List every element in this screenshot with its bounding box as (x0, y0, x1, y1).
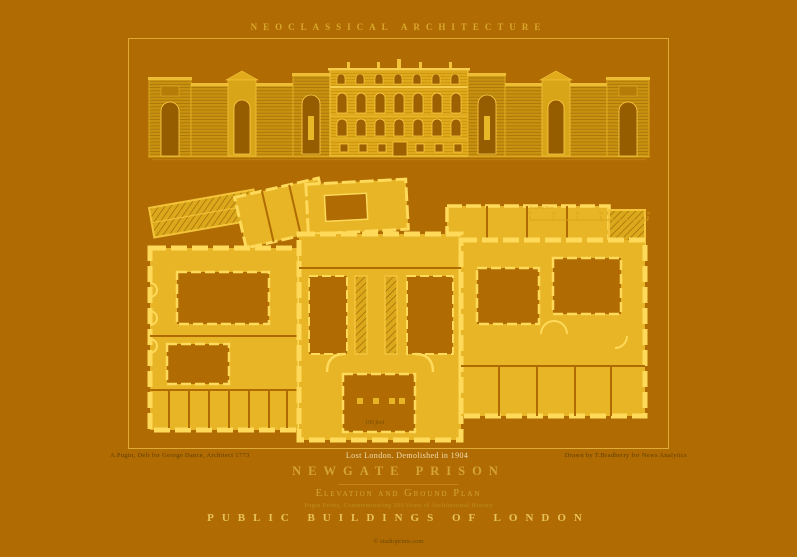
elevation-right-pavilion (606, 77, 650, 156)
scale-bar: Scale of Feet 0 20 40 60 80 100 (528, 202, 650, 228)
plate-subtitle: Elevation and Ground Plan (0, 488, 797, 499)
plan-quadrangle-east (461, 240, 645, 416)
elevation-left-wall (191, 71, 293, 156)
series-note: Pugin Prints, Commemorating 200 Years of… (0, 502, 797, 509)
elevation-left-pavilion (148, 77, 192, 156)
poster: NEOCLASSICAL ARCHITECTURE (0, 0, 797, 557)
elevation-central-block (328, 59, 470, 156)
plate-title: NEWGATE PRISON (0, 464, 797, 479)
scale-bar-caption: Scale of Feet (530, 205, 554, 210)
svg-text:60: 60 (599, 211, 604, 216)
title-divider (338, 484, 458, 485)
page-title: NEOCLASSICAL ARCHITECTURE (0, 22, 797, 32)
svg-text:20: 20 (551, 211, 556, 216)
plan-block-north-center (306, 179, 408, 234)
credit-left: A.Pugin, Delt for George Dance, Architec… (110, 452, 250, 459)
elevation-inner-pavilion-left (292, 73, 331, 156)
elevation-ground-line (148, 157, 650, 161)
elevation-inner-pavilion-right (467, 73, 506, 156)
plan-block-center (299, 234, 461, 440)
demolished-note: Lost London. Demolished in 1904 (346, 451, 468, 460)
copyright: © studioprints.com (0, 538, 797, 545)
series-title: PUBLIC BUILDINGS OF LONDON (0, 512, 797, 524)
svg-text:100: 100 (645, 211, 650, 216)
credit-right: Drawn by T.Bradberry for News Analytics (565, 452, 687, 459)
elevation-right-wall (505, 71, 607, 156)
svg-text:40: 40 (575, 211, 580, 216)
svg-text:0: 0 (529, 211, 532, 216)
plan-quadrangle-west (150, 248, 300, 430)
elevation-drawing (148, 56, 650, 164)
scale-bar-ticks: 0 20 40 60 80 100 (529, 211, 650, 216)
credits-row: A.Pugin, Delt for George Dance, Architec… (110, 449, 687, 461)
svg-text:80: 80 (622, 211, 627, 216)
plan-scale-note: 100 feet (365, 419, 384, 426)
